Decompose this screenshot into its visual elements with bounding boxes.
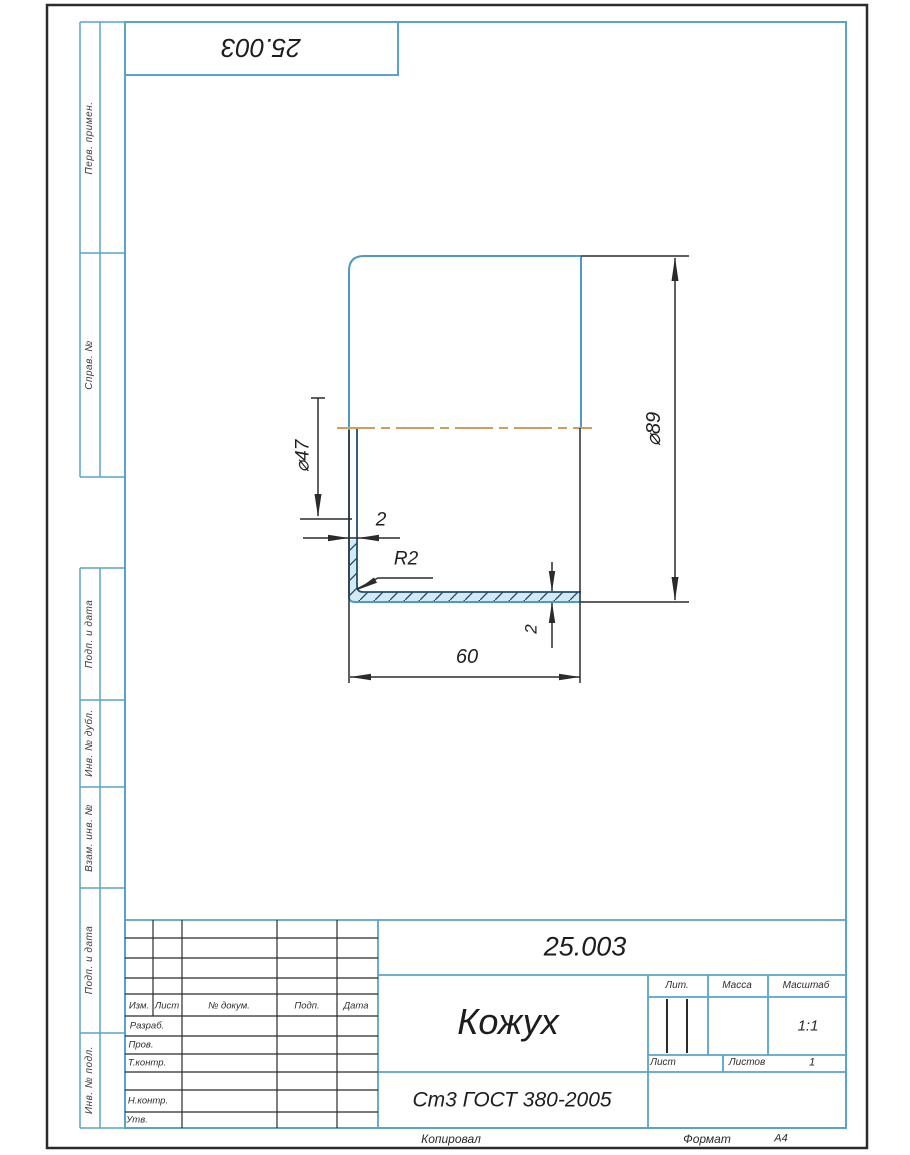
title-material: Ст3 ГОСТ 380-2005 — [412, 1090, 611, 1111]
footer-copied-label: Копировал — [421, 1133, 481, 1145]
dimension-lines — [300, 256, 689, 683]
dim-wall-thickness: 2 — [376, 511, 387, 530]
header-massa: Масса — [722, 981, 752, 991]
header-masshtab: Масштаб — [783, 981, 830, 991]
top-stamp-number: 25.003 — [221, 35, 301, 61]
row-prov: Пров. — [128, 1040, 153, 1050]
col-podp: Подп. — [294, 1001, 319, 1011]
footer-format-label: Формат — [683, 1133, 731, 1145]
col-list: Лист — [155, 1001, 179, 1011]
row-nkontr: Н.контр. — [128, 1096, 168, 1106]
margin-label-podp-data-2: Подп. и дата — [85, 926, 95, 995]
outer-border — [47, 5, 867, 1148]
margin-label-inv-dubl: Инв. № дубл. — [85, 709, 95, 777]
dimension-arrows — [315, 257, 679, 680]
title-doc-number: 25.003 — [544, 934, 627, 961]
header-listov: Листов — [729, 1058, 765, 1068]
header-list: Лист — [650, 1058, 676, 1068]
row-razrab: Разраб. — [130, 1021, 164, 1031]
margin-label-vzam-inv: Взам. инв. № — [85, 804, 95, 872]
part-geometry — [337, 256, 592, 602]
title-scale-value: 1:1 — [798, 1019, 819, 1034]
margin-label-podp-data-1: Подп. и дата — [85, 600, 95, 669]
footer-format-value: А4 — [774, 1134, 787, 1145]
dim-length: 60 — [456, 647, 478, 667]
margin-label-inv-podl: Инв. № подл. — [85, 1046, 95, 1114]
dim-fillet-radius: R2 — [394, 550, 418, 569]
col-data: Дата — [343, 1001, 368, 1011]
header-lit: Лит. — [665, 981, 688, 991]
col-doc: № докум. — [208, 1001, 250, 1011]
row-tkontr: Т.контр. — [128, 1058, 166, 1068]
sheets-count-value: 1 — [809, 1058, 815, 1069]
drawing-sheet: 25.003 Перв. примен. Справ. № Подп. и да… — [0, 0, 910, 1155]
title-part-name: Кожух — [457, 1004, 559, 1040]
drawing-canvas — [0, 0, 910, 1155]
margin-label-perv-primen: Перв. примен. — [85, 102, 95, 175]
row-utv: Утв. — [126, 1115, 148, 1125]
dim-bottom-thickness: 2 — [523, 624, 540, 633]
dim-outer-diameter: ⌀89 — [644, 412, 664, 446]
margin-label-sprav-no: Справ. № — [85, 340, 95, 389]
dim-inner-diameter: ⌀47 — [294, 440, 313, 473]
inner-frame — [125, 22, 846, 1128]
col-izm: Изм. — [129, 1001, 149, 1011]
